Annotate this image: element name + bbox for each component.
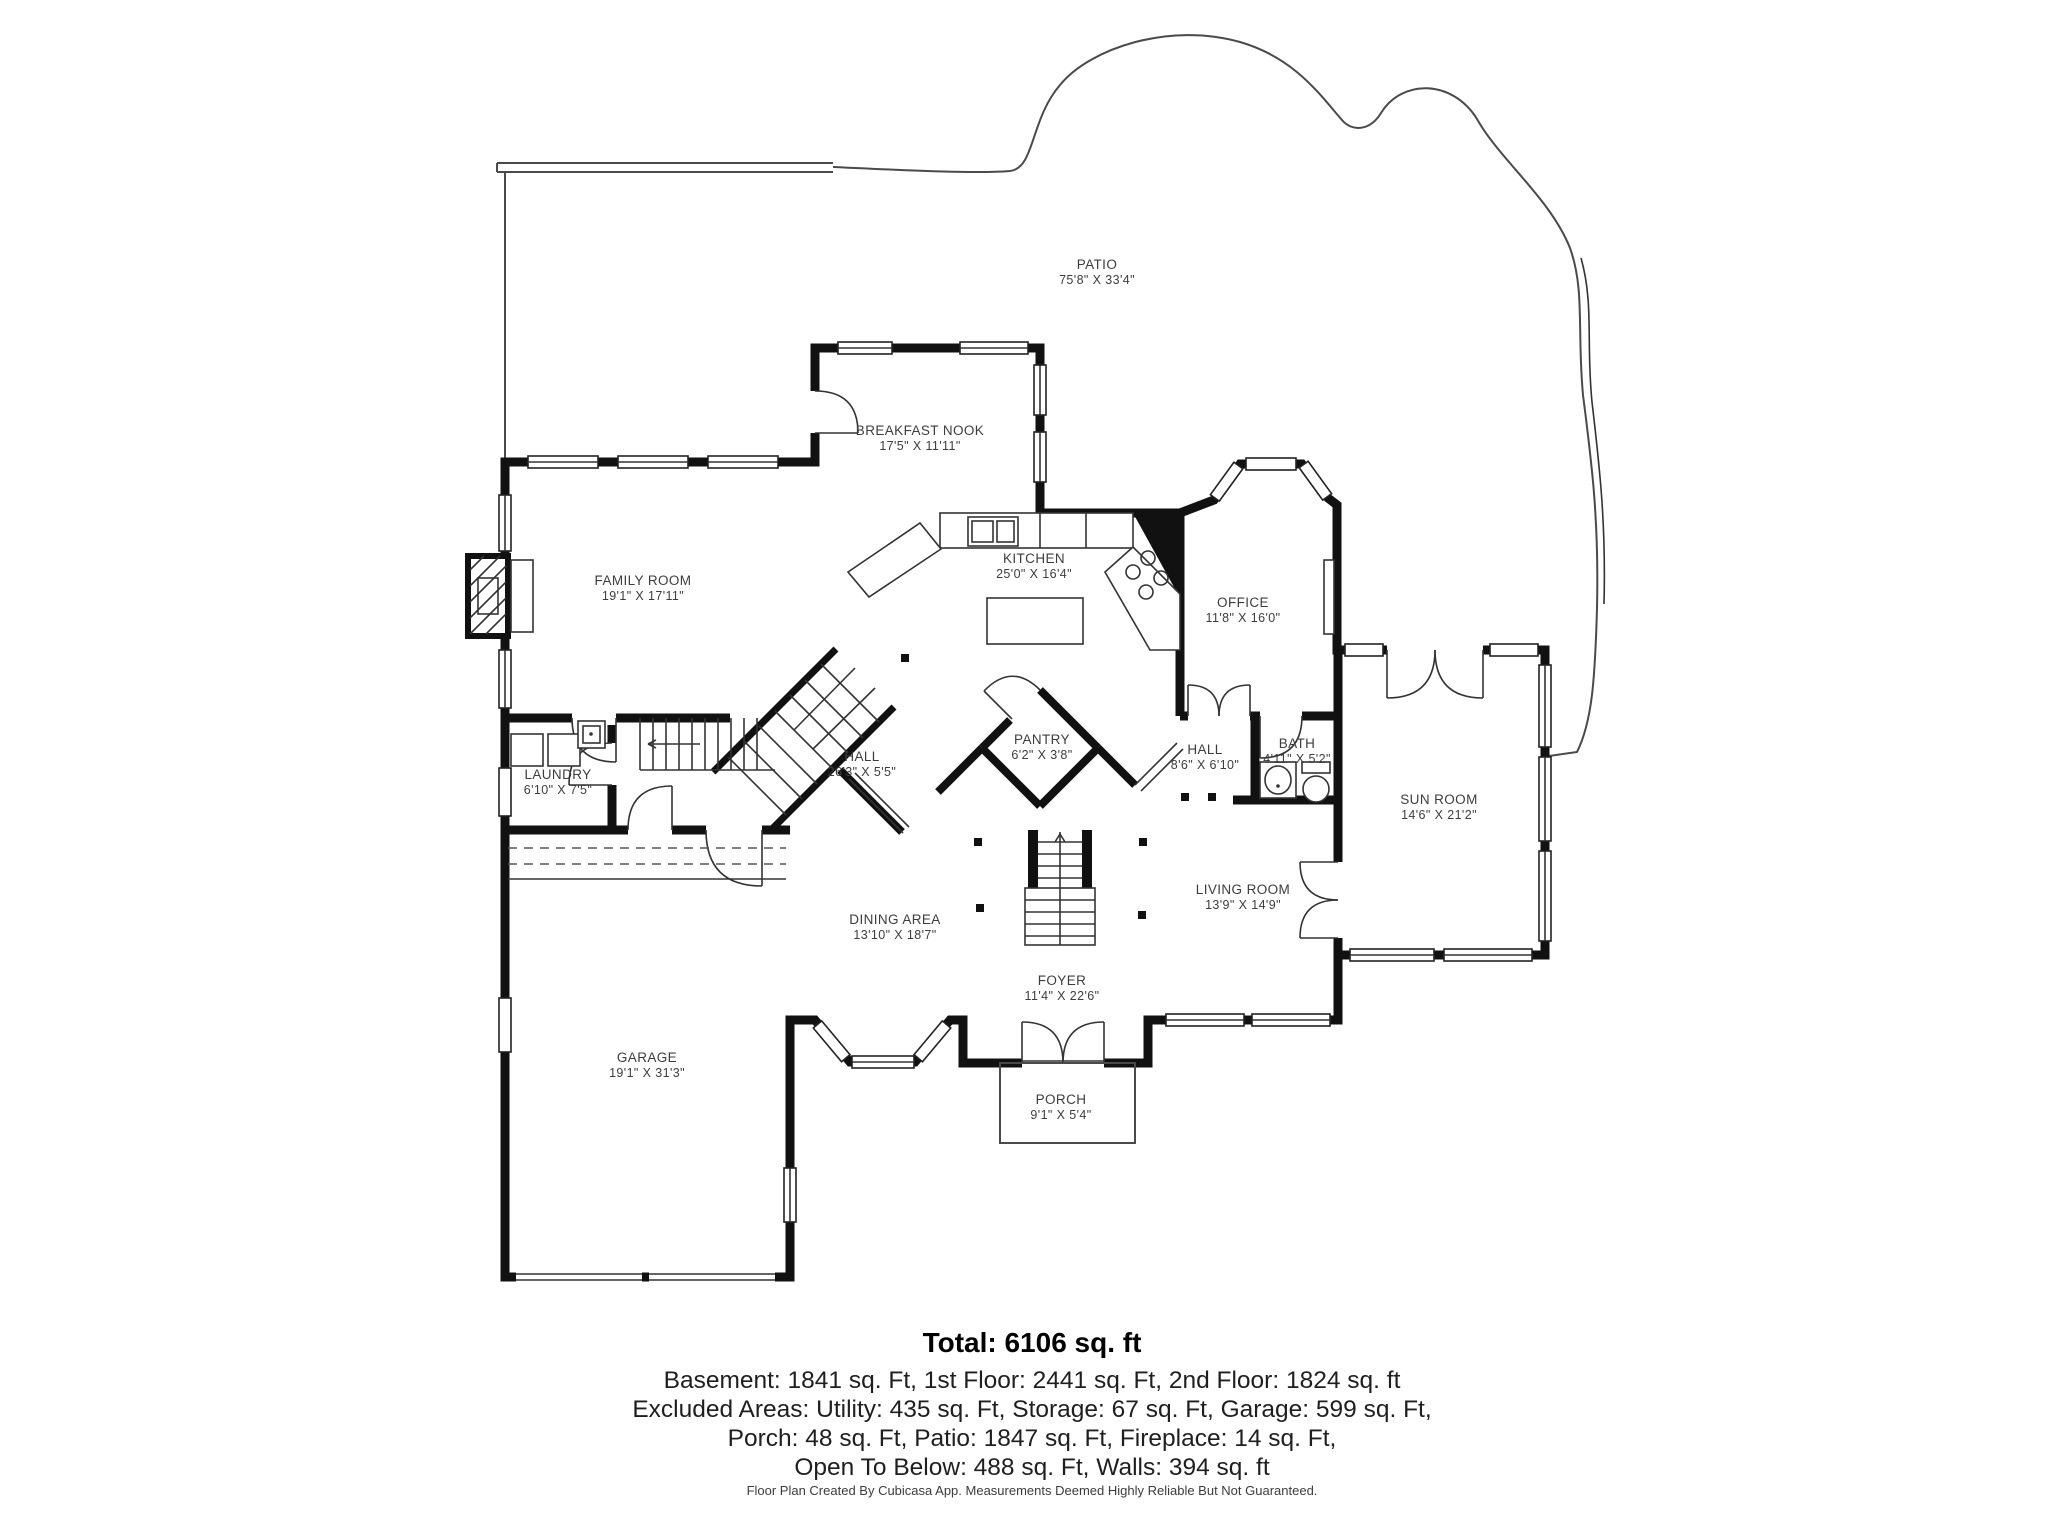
summary-line: Porch: 48 sq. Ft, Patio: 1847 sq. Ft, Fi… xyxy=(0,1424,2048,1453)
room-label-dining-area: DINING AREA13'10" X 18'7" xyxy=(849,912,940,942)
bath-fixtures xyxy=(1260,762,1330,802)
kitchen-sink-icon xyxy=(968,517,1018,546)
disclaimer-text: Floor Plan Created By Cubicasa App. Meas… xyxy=(0,1483,2048,1498)
exterior-walls xyxy=(505,348,1545,1277)
room-label-office: OFFICE11'8" X 16'0" xyxy=(1206,595,1281,625)
summary-line: Basement: 1841 sq. Ft, 1st Floor: 2441 s… xyxy=(0,1366,2048,1395)
office-shelf xyxy=(1324,560,1334,634)
floor-plan-drawing xyxy=(0,0,2048,1536)
summary-line: Excluded Areas: Utility: 435 sq. Ft, Sto… xyxy=(0,1395,2048,1424)
room-label-breakfast-nook: BREAKFAST NOOK17'5" X 11'11" xyxy=(856,423,984,453)
room-label-patio: PATIO75'8" X 33'4" xyxy=(1059,257,1135,287)
room-label-garage: GARAGE19'1" X 31'3" xyxy=(609,1050,685,1080)
media-cabinet xyxy=(511,560,533,632)
fireplace-icon xyxy=(468,556,508,636)
room-label-sun-room: SUN ROOM14'6" X 21'2" xyxy=(1400,792,1477,822)
total-area: Total: 6106 sq. ft xyxy=(0,1326,2048,1360)
summary-line: Open To Below: 488 sq. Ft, Walls: 394 sq… xyxy=(0,1453,2048,1482)
floor-plan-page: PATIO75'8" X 33'4" BREAKFAST NOOK17'5" X… xyxy=(0,0,2048,1536)
room-label-porch: PORCH9'1" X 5'4" xyxy=(1030,1092,1091,1122)
room-label-family-room: FAMILY ROOM19'1" X 17'11" xyxy=(595,573,692,603)
room-label-hall-rear: HALL8'6" X 6'10" xyxy=(1171,742,1240,772)
dryer-icon xyxy=(548,734,580,766)
kitchen-island xyxy=(987,598,1083,644)
room-label-hall-main: HALL26'3" X 5'5" xyxy=(828,749,897,779)
room-label-kitchen: KITCHEN25'0" X 16'4" xyxy=(996,551,1072,581)
washer-icon xyxy=(511,734,543,766)
room-label-foyer: FOYER11'4" X 22'6" xyxy=(1025,973,1100,1003)
room-label-pantry: PANTRY6'2" X 3'8" xyxy=(1011,732,1072,762)
room-label-bath: BATH4'11" X 5'2" xyxy=(1263,736,1331,766)
room-label-laundry: LAUNDRY6'10" X 7'5" xyxy=(524,767,593,797)
area-summary: Total: 6106 sq. ft Basement: 1841 sq. Ft… xyxy=(0,1326,2048,1482)
room-label-living-room: LIVING ROOM13'9" X 14'9" xyxy=(1196,882,1290,912)
